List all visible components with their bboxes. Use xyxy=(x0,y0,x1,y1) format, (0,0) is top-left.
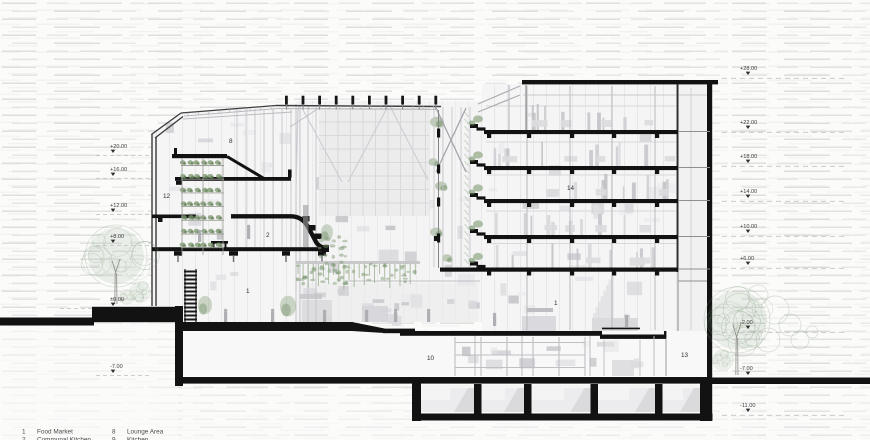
svg-text:-2.00: -2.00 xyxy=(740,320,753,326)
svg-text:+14.00: +14.00 xyxy=(740,189,757,195)
svg-text:12: 12 xyxy=(163,193,171,200)
svg-text:+16.00: +16.00 xyxy=(110,167,127,173)
svg-text:2: 2 xyxy=(22,437,26,440)
svg-text:2: 2 xyxy=(266,232,270,239)
svg-text:9: 9 xyxy=(112,437,116,440)
svg-text:+8.00: +8.00 xyxy=(110,234,124,240)
svg-text:Communal Kitchen: Communal Kitchen xyxy=(37,437,91,440)
svg-text:+10.00: +10.00 xyxy=(740,224,757,230)
svg-text:8: 8 xyxy=(229,138,233,145)
svg-text:+6.00: +6.00 xyxy=(740,256,754,262)
svg-text:+22.00: +22.00 xyxy=(740,120,757,126)
svg-text:8: 8 xyxy=(112,429,116,436)
svg-text:1: 1 xyxy=(554,300,558,307)
svg-text:+20.00: +20.00 xyxy=(110,144,127,150)
svg-text:Food Market: Food Market xyxy=(37,429,73,436)
svg-text:Kitchen: Kitchen xyxy=(127,437,149,440)
svg-text:+28.00: +28.00 xyxy=(740,66,757,72)
svg-text:±0.00: ±0.00 xyxy=(110,297,124,303)
svg-text:-7.00: -7.00 xyxy=(110,364,123,370)
svg-text:14: 14 xyxy=(567,185,575,192)
svg-text:-7.00: -7.00 xyxy=(740,366,753,372)
svg-text:-11.00: -11.00 xyxy=(740,403,755,409)
svg-text:+18.00: +18.00 xyxy=(740,154,757,160)
svg-text:1: 1 xyxy=(22,429,26,436)
svg-text:10: 10 xyxy=(427,355,435,362)
svg-text:Lounge Area: Lounge Area xyxy=(127,429,164,436)
svg-text:13: 13 xyxy=(681,352,689,359)
svg-text:+12.00: +12.00 xyxy=(110,203,127,209)
svg-text:1: 1 xyxy=(246,288,250,295)
